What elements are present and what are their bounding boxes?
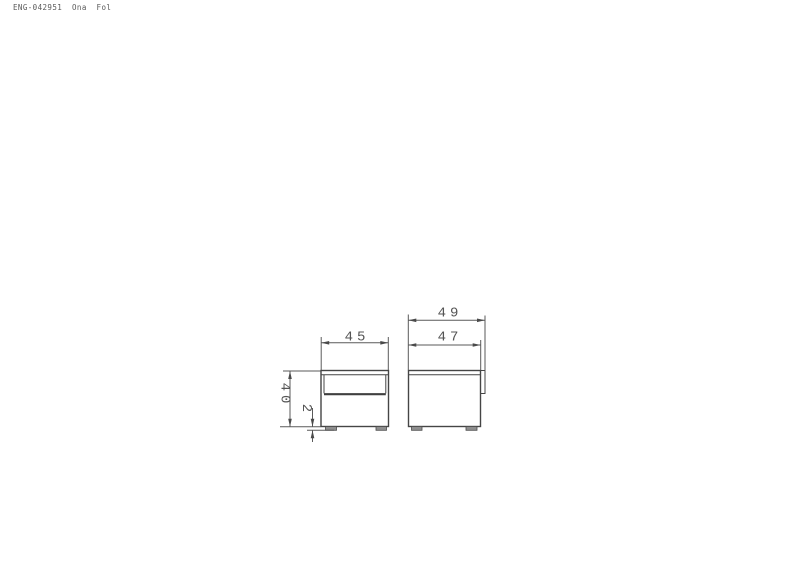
front-width-label: 45: [345, 330, 370, 346]
arrowhead-right: [380, 341, 388, 345]
overall-height-dimension: 40: [277, 371, 321, 427]
foot-height-dimension: 2: [298, 404, 334, 442]
front-view-carcass-outline: [321, 371, 389, 427]
arrowhead-down: [311, 419, 315, 427]
front-right-foot: [376, 427, 387, 431]
drawing-page: ENG-042951 Ona Fol 45: [0, 0, 800, 566]
arrowhead-up: [311, 430, 315, 438]
carcass-depth-label: 47: [438, 329, 463, 345]
side-view: [409, 371, 486, 431]
arrowhead-right: [473, 343, 481, 347]
arrowhead-left: [408, 319, 416, 323]
arrowhead-left: [408, 343, 416, 347]
side-right-foot: [466, 427, 477, 431]
carcass-depth-dimension: 47: [408, 329, 480, 370]
front-view: [321, 371, 389, 431]
arrowhead-down: [288, 419, 292, 427]
technical-drawing: 45 40 2 49: [0, 0, 800, 566]
overall-depth-label: 49: [438, 305, 463, 321]
overall-height-label: 40: [277, 383, 293, 408]
arrowhead-right: [477, 319, 485, 323]
foot-height-label: 2: [298, 404, 314, 416]
front-width-dimension: 45: [321, 330, 388, 371]
side-view-carcass-outline: [409, 371, 481, 427]
arrowhead-up: [288, 371, 292, 379]
side-left-foot: [412, 427, 423, 431]
arrowhead-left: [321, 341, 329, 345]
